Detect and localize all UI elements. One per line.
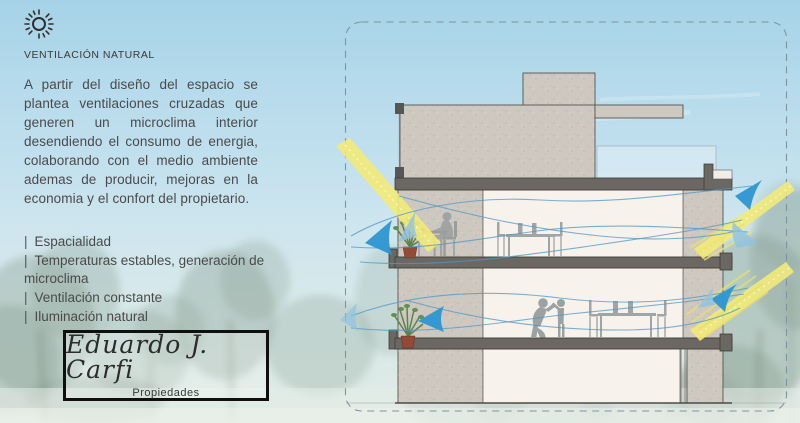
wall-texture [523,73,595,107]
feature-item: |Ventilación constante [24,289,276,307]
intro-paragraph: A partir del diseño del espacio se plant… [24,75,258,208]
lower-floor-interior [483,268,683,338]
airflow-arrow [365,220,392,255]
lower-slab [395,338,732,349]
plant-pot [401,336,415,348]
roof-slab [395,178,708,190]
parapet-notch [713,170,732,179]
wall-texture [398,349,483,403]
feature-list: |Espacialidad |Temperaturas estables, ge… [24,233,276,326]
brand-box: Eduardo J. Carfi Propiedades [63,330,269,401]
feature-bullet: | [24,253,28,268]
feature-item: |Iluminación natural [24,308,276,326]
plant-pot [403,247,417,258]
feature-item: |Temperaturas estables, generación de mi… [24,252,276,288]
wall-texture [400,105,595,180]
feature-bullet: | [24,234,28,249]
feature-bullet: | [24,290,28,305]
dining-table [598,313,656,316]
feature-item: |Espacialidad [24,233,276,251]
feature-label: Ventilación constante [35,290,163,305]
railing-cap [395,103,404,114]
chair [497,222,500,236]
feature-label: Espacialidad [35,234,112,249]
chair [589,300,592,316]
wall-texture [687,349,723,403]
feature-bullet: | [24,309,28,324]
presentation-slide: { "header": { "icon": "sun-icon", "title… [0,0,800,423]
sun-icon [22,7,56,41]
railing-cap [395,167,404,178]
feature-label: Iluminación natural [35,309,148,324]
interior-spaces [483,190,685,403]
brand-name: Eduardo J. Carfi [66,332,266,382]
chair [613,301,618,314]
chair [532,223,537,235]
airflow-arrow-light [340,303,358,331]
ground-floor-interior [483,349,680,403]
mid-slab-edge-block [720,253,732,270]
glass-railing [597,146,716,178]
lower-slab-edge-block [720,334,732,351]
chair [454,221,457,237]
feature-label: Temperaturas estables, generación de mic… [24,253,264,286]
text-panel: VENTILACIÓN NATURAL A partir del diseño … [24,7,286,327]
pergola-beam [595,105,683,118]
page-title: VENTILACIÓN NATURAL [24,49,286,61]
chair [664,300,667,316]
brand-tagline: Propiedades [132,387,199,399]
